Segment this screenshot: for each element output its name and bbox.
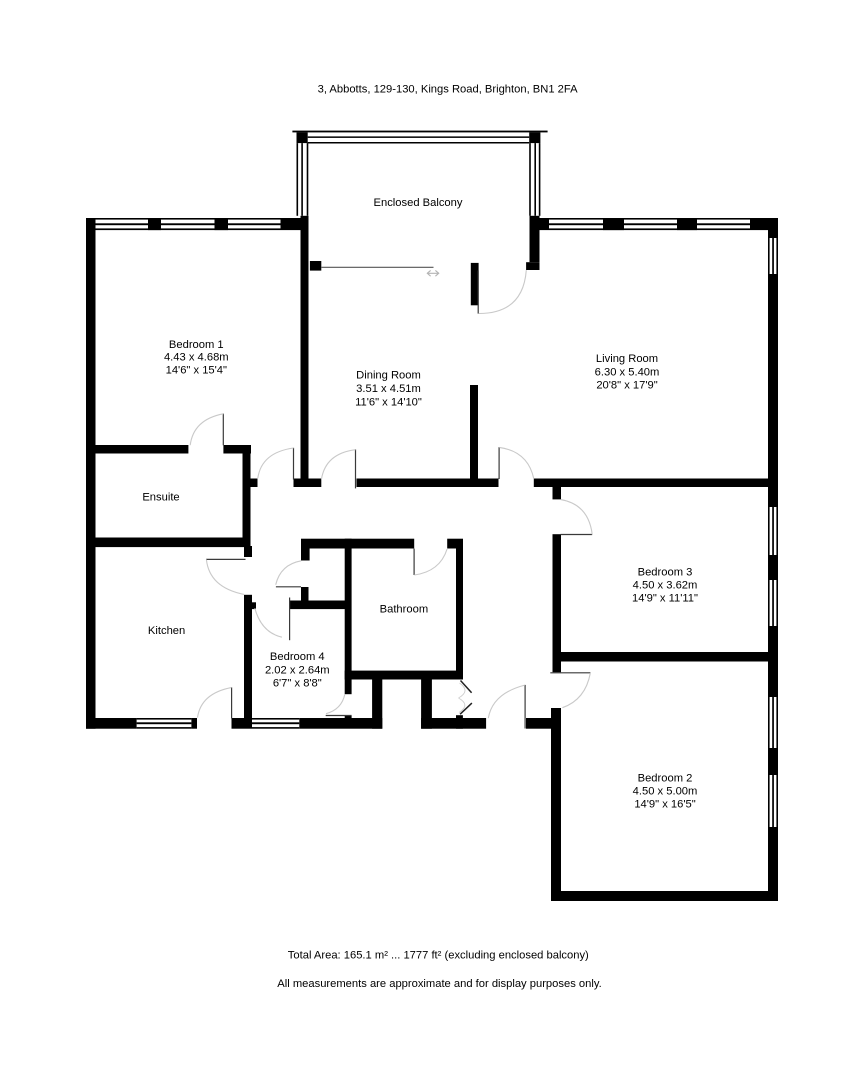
svg-text:4.43 x 4.68m: 4.43 x 4.68m (164, 352, 229, 364)
svg-text:Dining Room: Dining Room (356, 370, 421, 382)
svg-text:Bedroom 2: Bedroom 2 (638, 773, 693, 785)
svg-text:Bathroom: Bathroom (380, 604, 429, 616)
svg-text:All measurements are approxima: All measurements are approximate and for… (277, 978, 601, 990)
svg-text:2.02 x 2.64m: 2.02 x 2.64m (265, 664, 330, 676)
svg-text:6.30 x 5.40m: 6.30 x 5.40m (595, 366, 660, 378)
svg-text:6'7" x 8'8": 6'7" x 8'8" (273, 678, 322, 690)
svg-text:4.50 x 3.62m: 4.50 x 3.62m (633, 579, 698, 591)
svg-text:Bedroom 3: Bedroom 3 (638, 566, 693, 578)
svg-text:14'6" x 15'4": 14'6" x 15'4" (166, 365, 227, 377)
svg-text:20'8" x 17'9": 20'8" x 17'9" (596, 379, 657, 391)
svg-text:Bedroom 1: Bedroom 1 (169, 339, 224, 351)
svg-text:Kitchen: Kitchen (148, 625, 185, 637)
svg-text:Total Area: 165.1 m² ... 1777: Total Area: 165.1 m² ... 1777 ft² (exclu… (288, 950, 589, 962)
svg-text:14'9" x 11'11": 14'9" x 11'11" (632, 592, 698, 604)
svg-text:Ensuite: Ensuite (142, 491, 179, 503)
svg-text:11'6" x 14'10": 11'6" x 14'10" (355, 397, 422, 409)
svg-text:3.51 x 4.51m: 3.51 x 4.51m (356, 383, 421, 395)
svg-text:14'9" x 16'5": 14'9" x 16'5" (634, 799, 695, 811)
svg-text:Living Room: Living Room (596, 353, 658, 365)
svg-text:Enclosed Balcony: Enclosed Balcony (374, 197, 463, 209)
svg-text:Bedroom 4: Bedroom 4 (270, 651, 325, 663)
svg-text:4.50 x 5.00m: 4.50 x 5.00m (633, 786, 698, 798)
svg-text:3, Abbotts, 129-130, Kings Roa: 3, Abbotts, 129-130, Kings Road, Brighto… (318, 83, 578, 95)
